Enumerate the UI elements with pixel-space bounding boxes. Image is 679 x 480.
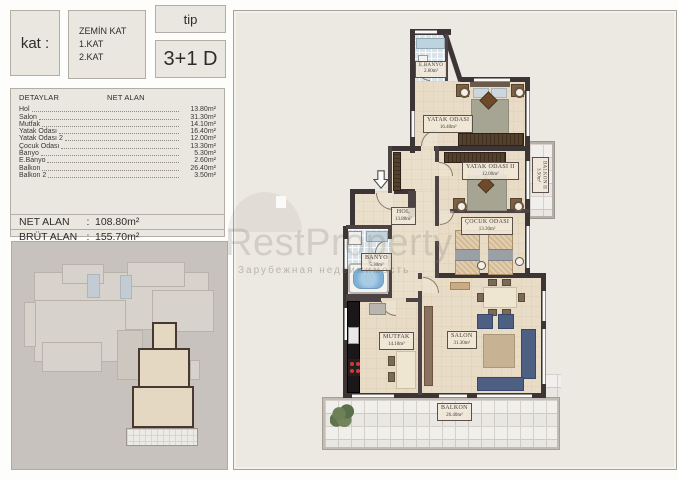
nightstand <box>456 84 469 97</box>
net-alan-value: 108.80m² <box>95 216 139 228</box>
mini-terrace <box>24 302 36 347</box>
bed-blanket <box>455 249 480 261</box>
balcony-door <box>439 394 467 398</box>
net-alan-sep: : <box>81 216 95 228</box>
wall <box>346 225 391 229</box>
detail-row-yatak2: Yatak Odası 212.00m² <box>19 135 216 142</box>
room-area: 5.30m² <box>365 263 388 269</box>
apartment-type-box: 3+1 D <box>155 40 226 78</box>
label-yatak-odasi: YATAK ODASI16.40m² <box>423 115 473 133</box>
hall-closet <box>393 152 401 191</box>
label-ebanyo: E.BANYO2.60m² <box>415 61 447 78</box>
details-col-name: DETAYLAR <box>19 93 107 102</box>
lamp <box>515 257 524 266</box>
row-area: 3.50m² <box>182 172 216 179</box>
balcony-door <box>526 161 530 199</box>
row-area: 13.80m² <box>182 106 216 113</box>
dining-table <box>483 287 517 308</box>
washing-machine <box>348 231 362 245</box>
kitchen-table <box>396 351 416 389</box>
row-area: 2.60m² <box>182 157 216 164</box>
row-area: 26.40m² <box>182 165 216 172</box>
window <box>542 329 546 384</box>
dining-chair <box>518 293 525 302</box>
room-area: 31.30m² <box>451 341 473 347</box>
wardrobe <box>458 133 524 146</box>
room-name: BALKON <box>441 405 468 411</box>
wall <box>435 176 439 226</box>
detail-row-yatak1: Yatak Odası16.40m² <box>19 128 216 135</box>
label-cocuk-odasi: ÇOCUK ODASI13.30m² <box>461 217 513 235</box>
window <box>411 111 415 137</box>
balcony-window <box>477 394 532 398</box>
mini-balcony2 <box>190 360 200 380</box>
wall <box>418 291 422 300</box>
detail-row-ebanyo: E.Banyo2.60m² <box>19 157 216 164</box>
label-hol: HOL13.80m² <box>391 207 416 225</box>
floor-line-1: 1.KAT <box>79 38 145 51</box>
tip-label-box: tip <box>155 5 226 33</box>
dot-leader <box>47 162 179 163</box>
net-alan-row: NET ALAN : 108.80m² <box>11 214 224 229</box>
rug <box>483 334 515 368</box>
wall <box>418 273 422 279</box>
floor-list-box: ZEMİN KAT 1.KAT 2.KAT <box>68 10 146 79</box>
row-area: 16.40m² <box>182 128 216 135</box>
nightstand <box>510 198 522 210</box>
room-area: 2.60m² <box>419 69 443 75</box>
sofa <box>477 377 524 391</box>
spacer <box>11 182 224 214</box>
room-area: 12.00m² <box>466 172 515 178</box>
dot-leader <box>32 111 179 112</box>
room-area: 26.40m² <box>441 413 468 419</box>
kitchen-sink <box>348 327 359 344</box>
wall <box>435 241 439 278</box>
room-area: 3.50m² <box>534 161 540 189</box>
dot-leader <box>59 133 179 134</box>
nightstand <box>511 84 524 97</box>
row-area: 5.30m² <box>182 150 216 157</box>
label-yatak-odasi-2: YATAK ODASI II12.00m² <box>462 162 519 180</box>
row-name: Banyo <box>19 150 39 157</box>
room-name: YATAK ODASI <box>427 117 469 123</box>
burner <box>350 362 354 366</box>
detail-row-balkon: Balkon26.40m² <box>19 164 216 171</box>
detail-row-hol: Hol13.80m² <box>19 106 216 113</box>
label-banyo: BANYO5.30m² <box>361 253 392 271</box>
details-col-area: NET ALAN <box>107 93 145 102</box>
mini-highlight-unit <box>132 386 194 428</box>
mini-floorplan-panel <box>11 241 228 470</box>
net-alan-label: NET ALAN <box>19 216 81 228</box>
terrace-corner <box>544 374 561 398</box>
row-name: Salon <box>19 114 37 121</box>
row-name: Çocuk Odası <box>19 143 59 150</box>
window <box>352 394 394 398</box>
details-list: Hol13.80m² Salon31.30m² Mutfak14.10m² Ya… <box>11 104 224 182</box>
wall <box>350 189 375 194</box>
plant <box>330 403 356 427</box>
label-salon: SALON31.30m² <box>447 331 477 349</box>
floor-line-2: 2.KAT <box>79 51 145 64</box>
row-area: 12.00m² <box>182 135 216 142</box>
dot-leader <box>42 126 179 127</box>
bathtub-water <box>353 268 384 289</box>
detail-row-cocuk: Çocuk Odası13.30m² <box>19 142 216 149</box>
burner <box>356 369 360 373</box>
mini-highlight-unit <box>138 348 190 388</box>
mini-bathroom <box>87 274 100 298</box>
armchair <box>498 314 514 329</box>
label-balkon: BALKON26.40m² <box>437 403 472 421</box>
room-name: BALKON II <box>542 161 547 189</box>
mini-building-block <box>42 342 102 372</box>
kitchen-counter <box>347 301 360 393</box>
wall <box>388 225 392 239</box>
room-name: E.BANYO <box>419 63 443 68</box>
details-header: DETAYLAR NET ALAN <box>11 89 224 104</box>
wall <box>434 146 528 151</box>
room-area: 14.10m² <box>383 342 410 348</box>
floor-line-zemin: ZEMİN KAT <box>79 25 145 38</box>
wall <box>435 146 439 162</box>
armchair <box>477 314 493 329</box>
room-name: YATAK ODASI II <box>466 164 515 170</box>
room-name: SALON <box>451 333 473 339</box>
dining-chair <box>488 279 497 286</box>
wall <box>418 298 422 395</box>
kitchen-chair <box>388 356 395 366</box>
mini-bathroom <box>120 275 132 299</box>
row-name: Yatak Odası 2 <box>19 135 63 142</box>
window <box>542 291 546 321</box>
row-name: Mutfak <box>19 121 40 128</box>
wall <box>350 189 355 229</box>
tip-label: tip <box>184 12 198 27</box>
dot-leader <box>39 119 179 120</box>
bed-blanket <box>488 249 513 261</box>
tv-unit <box>424 306 433 386</box>
window <box>526 91 530 136</box>
kat-label: kat : <box>21 35 49 52</box>
row-area: 31.30m² <box>182 114 216 121</box>
burner <box>356 362 360 366</box>
mini-building-block <box>127 262 185 287</box>
dot-leader <box>61 148 179 149</box>
entrance-arrow-icon <box>373 170 389 189</box>
refrigerator <box>369 303 386 315</box>
window <box>415 30 437 34</box>
room-name: HOL <box>397 209 410 215</box>
row-name: Yatak Odası <box>19 128 57 135</box>
row-name: Balkon <box>19 165 40 172</box>
wall <box>388 146 421 151</box>
room-name: BANYO <box>365 255 388 261</box>
shower <box>416 38 445 49</box>
label-balkon-2: BALKON II3.50m² <box>532 157 549 193</box>
sofa <box>521 329 536 379</box>
detail-row-balkon2: Balkon 23.50m² <box>19 172 216 179</box>
detail-row-mutfak: Mutfak14.10m² <box>19 121 216 128</box>
bathroom-sink <box>366 231 388 242</box>
dining-chair <box>502 279 511 286</box>
dot-leader <box>65 140 179 141</box>
row-area: 14.10m² <box>182 121 216 128</box>
label-mutfak: MUTFAK14.10m² <box>379 332 414 350</box>
detail-row-banyo: Banyo5.30m² <box>19 150 216 157</box>
mini-highlight-balcony <box>126 428 198 446</box>
apartment-type: 3+1 D <box>164 48 218 71</box>
room-area: 16.40m² <box>427 125 469 131</box>
main-floorplan-panel: E.BANYO2.60m² YATAK ODASI16.40m² YATAK O… <box>233 10 677 470</box>
row-name: Hol <box>19 106 30 113</box>
floorplan-document: { "header": { "kat_label": "kat :", "flo… <box>0 0 679 480</box>
room-area: 13.30m² <box>465 227 509 233</box>
dining-chair <box>477 293 484 302</box>
bed-headboard <box>470 82 510 87</box>
row-area: 13.30m² <box>182 143 216 150</box>
row-name: Balkon 2 <box>19 172 46 179</box>
detail-row-salon: Salon31.30m² <box>19 113 216 120</box>
kat-label-box: kat : <box>10 10 60 76</box>
window <box>526 226 530 268</box>
sideboard <box>450 282 470 290</box>
dot-leader <box>48 177 179 178</box>
burner <box>350 369 354 373</box>
row-name: E.Banyo <box>19 157 45 164</box>
mini-highlight-unit <box>152 322 177 350</box>
kitchen-chair <box>388 372 395 382</box>
details-table: DETAYLAR NET ALAN Hol13.80m² Salon31.30m… <box>10 88 225 237</box>
dot-leader <box>42 170 179 171</box>
nightstand <box>453 198 465 210</box>
room-name: MUTFAK <box>383 334 410 340</box>
room-name: ÇOCUK ODASI <box>465 219 509 225</box>
lamp <box>477 261 486 270</box>
dot-leader <box>41 155 179 156</box>
room-area: 13.80m² <box>395 217 412 223</box>
